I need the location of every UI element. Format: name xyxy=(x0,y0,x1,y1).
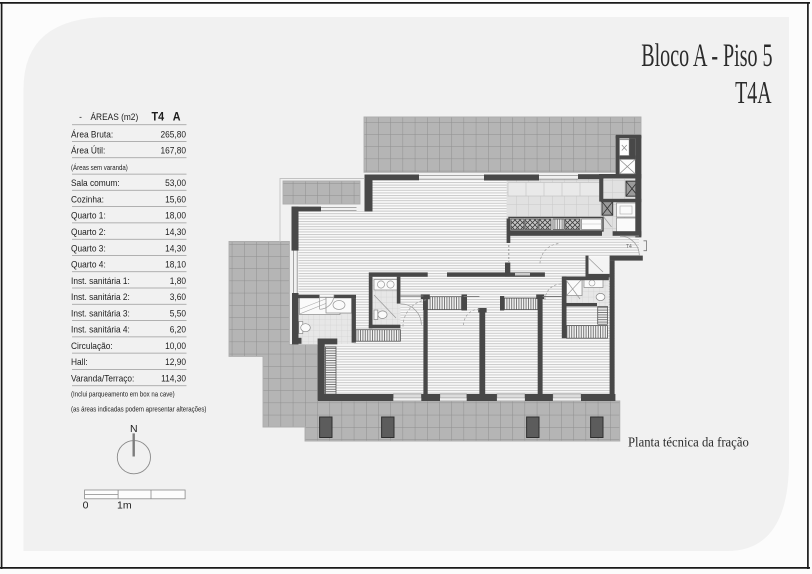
svg-text:3,60: 3,60 xyxy=(170,292,186,303)
svg-text:Quarto 2:: Quarto 2: xyxy=(71,226,106,237)
svg-text:N: N xyxy=(130,423,138,435)
svg-text:0: 0 xyxy=(83,500,89,512)
svg-text:Varanda/Terraço:: Varanda/Terraço: xyxy=(71,373,134,384)
svg-text:18,10: 18,10 xyxy=(165,259,186,270)
svg-text:5,50: 5,50 xyxy=(170,308,186,319)
svg-text:T4: T4 xyxy=(626,244,632,250)
svg-text:1,80: 1,80 xyxy=(170,275,186,286)
svg-text:14,30: 14,30 xyxy=(165,226,186,237)
svg-text:T4A: T4A xyxy=(735,74,772,110)
svg-text:Quarto 3:: Quarto 3: xyxy=(71,243,106,254)
svg-text:Área Útil:: Área Útil: xyxy=(71,145,105,156)
svg-text:(Inclui parqueamento em box na: (Inclui parqueamento em box na cave) xyxy=(71,391,175,398)
svg-text:Sala comum:: Sala comum: xyxy=(71,178,120,189)
svg-text:(as áreas indicadas podem apre: (as áreas indicadas podem apresentar alt… xyxy=(71,406,206,413)
svg-text:Bloco A - Piso 5: Bloco A - Piso 5 xyxy=(641,37,772,73)
svg-text:-: - xyxy=(79,111,82,122)
svg-text:Planta técnica da fração: Planta técnica da fração xyxy=(628,434,749,450)
svg-text:53,00: 53,00 xyxy=(165,178,186,189)
svg-text:265,80: 265,80 xyxy=(160,129,186,140)
svg-text:Inst. sanitária 3:: Inst. sanitária 3: xyxy=(71,308,130,319)
svg-text:(Áreas sem varanda): (Áreas sem varanda) xyxy=(71,162,128,172)
svg-text:167,80: 167,80 xyxy=(160,145,186,156)
svg-text:Hall:: Hall: xyxy=(71,357,88,368)
svg-text:1m: 1m xyxy=(117,500,132,512)
svg-text:114,30: 114,30 xyxy=(161,373,186,384)
svg-text:A: A xyxy=(173,110,181,124)
svg-text:12,90: 12,90 xyxy=(165,357,186,368)
svg-text:ÁREAS (m2): ÁREAS (m2) xyxy=(90,111,138,122)
svg-text:Quarto 4:: Quarto 4: xyxy=(71,259,106,270)
svg-text:Quarto 1:: Quarto 1: xyxy=(71,210,106,221)
svg-text:Inst. sanitária 4:: Inst. sanitária 4: xyxy=(71,324,130,335)
svg-text:T4: T4 xyxy=(152,110,165,124)
svg-text:10,00: 10,00 xyxy=(165,340,186,351)
svg-text:Inst. sanitária 1:: Inst. sanitária 1: xyxy=(71,275,130,286)
svg-text:14,30: 14,30 xyxy=(165,243,186,254)
svg-text:Circulação:: Circulação: xyxy=(71,340,113,351)
svg-text:Área Bruta:: Área Bruta: xyxy=(71,129,113,140)
svg-text:15,60: 15,60 xyxy=(165,194,186,205)
svg-text:Cozinha:: Cozinha: xyxy=(71,194,104,205)
svg-text:Inst. sanitária 2:: Inst. sanitária 2: xyxy=(71,292,130,303)
svg-text:18,00: 18,00 xyxy=(165,210,186,221)
svg-text:6,20: 6,20 xyxy=(170,324,186,335)
